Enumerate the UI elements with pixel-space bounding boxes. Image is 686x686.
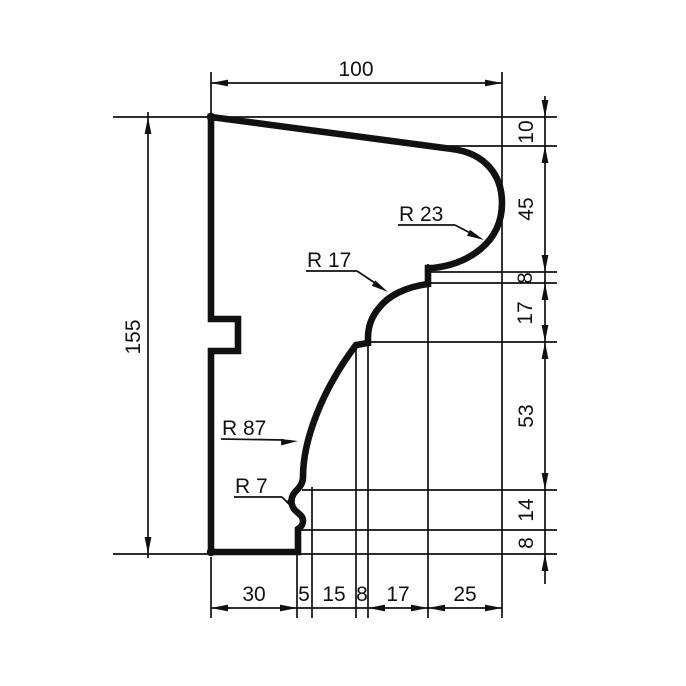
dim-bottom-30: 30 (242, 583, 265, 606)
arrow-right-17-top (542, 283, 549, 300)
arrow-right-10-top (542, 100, 549, 117)
arrow-top-left (211, 80, 228, 87)
dim-bottom-17: 17 (386, 583, 409, 606)
dim-bottom-25: 25 (453, 583, 476, 606)
dim-right-10: 10 (515, 120, 538, 143)
technical-drawing-svg: 100 155 10 45 8 17 53 14 8 30 5 15 8 17 … (0, 0, 686, 686)
arrow-leader-r17 (372, 280, 388, 292)
corner-joint-dot-bottom (207, 548, 215, 556)
dim-bottom-15: 15 (322, 583, 345, 606)
dim-right-8b: 8 (515, 537, 538, 549)
extension-lines-horizontal (113, 117, 557, 554)
dim-top-100: 100 (338, 58, 373, 81)
arrow-leader-r23 (467, 230, 484, 240)
arrow-right-53-top (542, 342, 549, 359)
radius-label-r7: R 7 (235, 475, 268, 498)
arrow-bottom-25-left (428, 605, 445, 612)
dim-right-14: 14 (515, 498, 538, 522)
radius-label-r23: R 23 (399, 203, 443, 226)
dim-right-8a: 8 (514, 272, 537, 284)
arrow-bottom-17-right (411, 605, 428, 612)
arrow-left-up (145, 117, 152, 134)
dim-right-45: 45 (515, 197, 538, 220)
arrow-bottom-30-left (211, 605, 228, 612)
dimension-labels: 100 155 10 45 8 17 53 14 8 30 5 15 8 17 … (122, 58, 538, 606)
arrow-right-45-bottom (542, 255, 549, 272)
arrow-bottom-17-left (368, 605, 385, 612)
radius-label-r87: R 87 (222, 417, 266, 440)
arrow-bottom-30-right (280, 605, 297, 612)
arrow-left-down (145, 537, 152, 554)
radius-labels: R 23 R 17 R 87 R 7 (222, 203, 443, 498)
dim-bottom-8: 8 (356, 583, 368, 606)
arrow-right-45-top (542, 146, 549, 163)
dim-left-155: 155 (122, 319, 145, 354)
arrow-top-right (485, 80, 502, 87)
arrowheads (145, 80, 549, 612)
dim-right-53: 53 (515, 404, 538, 427)
arrow-bottom-25-right (485, 605, 502, 612)
radius-label-r17: R 17 (307, 249, 351, 272)
arrow-right-53-bottom (542, 473, 549, 490)
arrow-right-8-bottom (542, 554, 549, 571)
dim-bottom-5: 5 (298, 583, 310, 606)
dim-right-17: 17 (514, 301, 537, 324)
moulding-profile-drawing: 100 155 10 45 8 17 53 14 8 30 5 15 8 17 … (0, 0, 686, 686)
arrow-leader-r87 (281, 439, 298, 445)
arrow-right-17-bottom (542, 325, 549, 342)
corner-joint-dot-top (207, 113, 215, 121)
